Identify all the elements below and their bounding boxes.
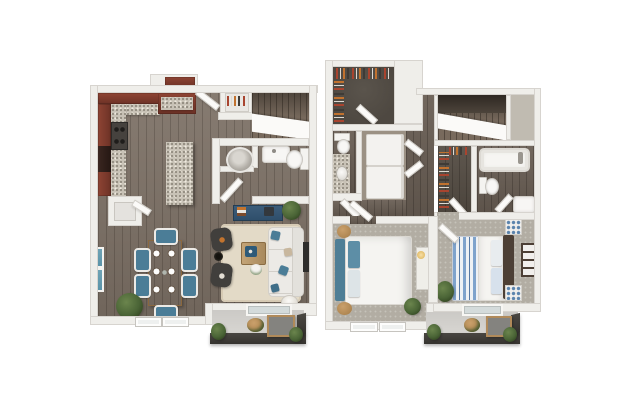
hanging-clothes bbox=[449, 147, 469, 155]
hanging-clothes bbox=[336, 68, 391, 79]
lamp-glow-icon bbox=[417, 251, 425, 259]
door-opening bbox=[437, 212, 459, 220]
wall-segment bbox=[325, 216, 434, 224]
nightstand bbox=[505, 219, 522, 235]
patio-door bbox=[462, 304, 503, 316]
bed-2-pillow bbox=[491, 240, 502, 266]
bed-1-pillow bbox=[348, 270, 360, 297]
vanity-sink bbox=[513, 196, 535, 213]
wall-segment bbox=[428, 216, 438, 303]
floorplan-image bbox=[0, 0, 639, 401]
nightstand bbox=[337, 302, 352, 315]
window bbox=[350, 322, 378, 332]
patio-side-table bbox=[464, 318, 480, 332]
balcony-plant bbox=[427, 324, 441, 340]
vanity-sink bbox=[336, 166, 348, 181]
balcony-plant bbox=[503, 327, 517, 342]
toilet-bowl bbox=[485, 178, 499, 195]
stair-overhang bbox=[438, 112, 506, 140]
stair-dark-landing bbox=[438, 95, 506, 113]
wall-segment bbox=[325, 124, 423, 131]
wall-segment bbox=[325, 60, 333, 330]
wall-segment bbox=[434, 140, 541, 146]
wall-segment bbox=[434, 95, 438, 140]
landing-nook-floor bbox=[511, 95, 534, 140]
bed-1-pillow bbox=[348, 241, 360, 268]
wall-segment bbox=[534, 88, 541, 312]
hanging-clothes bbox=[334, 80, 344, 122]
bed-1-headboard bbox=[335, 239, 345, 301]
tub-faucet-icon bbox=[518, 152, 523, 164]
nightstand bbox=[505, 285, 522, 301]
toilet-bowl bbox=[337, 139, 350, 154]
window bbox=[379, 322, 406, 332]
bed-2-striped-quilt bbox=[452, 236, 480, 301]
wall-segment bbox=[471, 146, 477, 212]
nightstand bbox=[337, 225, 351, 238]
staircase-up bbox=[438, 95, 506, 140]
washer bbox=[366, 134, 404, 166]
wall-segment bbox=[506, 95, 511, 140]
dryer bbox=[366, 166, 404, 199]
hanging-clothes bbox=[439, 152, 449, 208]
second-floor-plan bbox=[0, 0, 639, 401]
bedroom-plant bbox=[436, 281, 454, 302]
wall-segment bbox=[356, 131, 362, 201]
bed-2-pillow bbox=[491, 268, 502, 294]
bedroom-plant bbox=[404, 298, 421, 315]
wall-segment bbox=[416, 88, 541, 95]
